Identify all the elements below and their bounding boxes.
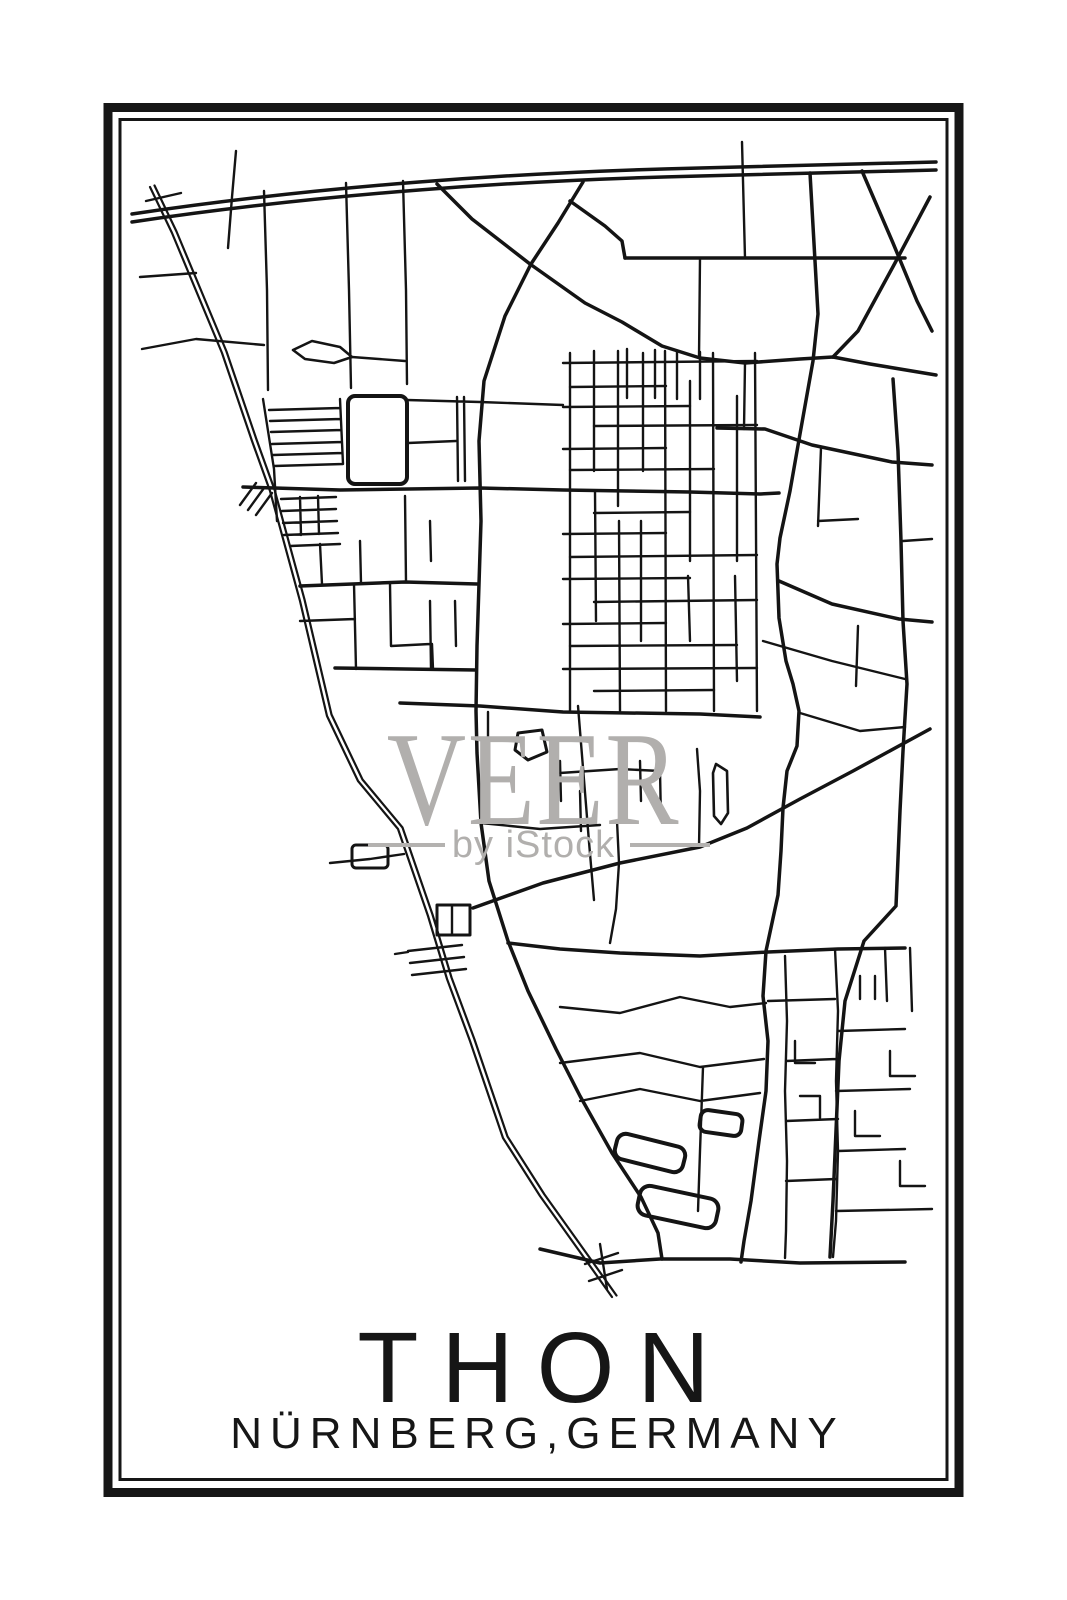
chunky-block-2 bbox=[636, 1184, 720, 1230]
poster-title: THON bbox=[0, 1318, 1067, 1418]
chunky-block-1 bbox=[613, 1132, 687, 1174]
chunky-block-3 bbox=[699, 1109, 744, 1137]
pond-shape bbox=[293, 341, 352, 363]
large-block-outline bbox=[348, 396, 407, 484]
map-poster: VEER by iStock THON NÜRNBERG,GERMANY bbox=[0, 0, 1067, 1600]
watermark-byline: by iStock bbox=[0, 826, 1067, 864]
poster-subtitle: NÜRNBERG,GERMANY bbox=[0, 1412, 1067, 1456]
watermark-divider-right bbox=[630, 843, 710, 847]
station-block-east bbox=[437, 905, 470, 935]
